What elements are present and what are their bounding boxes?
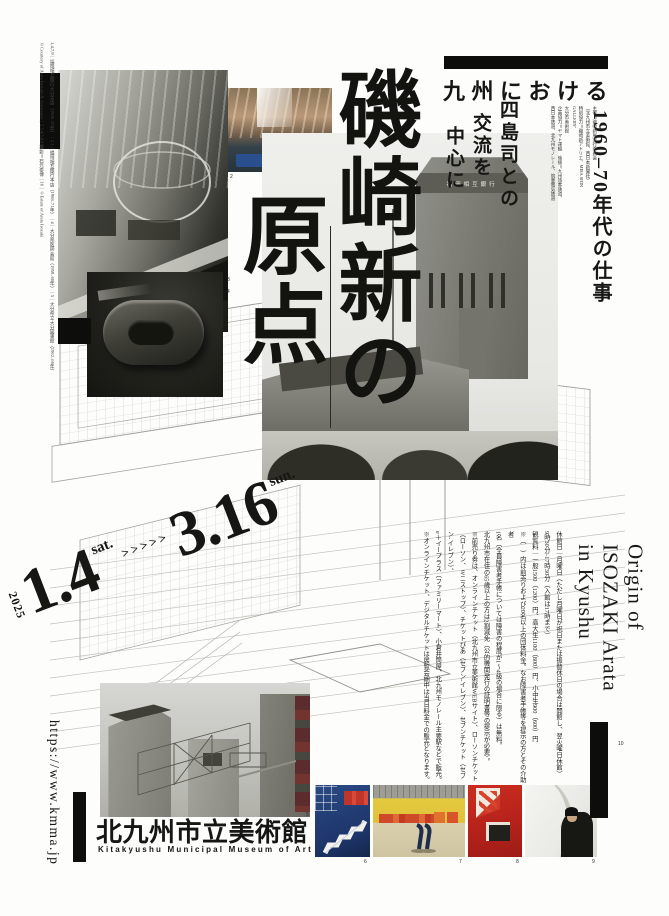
info-line: ※オンラインチケット、デジタルチケットは展覧会期中は当日料金での販売となります。 xyxy=(419,531,431,783)
info-line: e＋イープラス（ファミリーマート）、小倉井筒屋、北九州モノレール主要駅などで販売… xyxy=(431,531,443,783)
info-line: ※（ ）内は前売りおよび20名以上の団体料金。なお障害者手帳等を提示の方とその介… xyxy=(504,531,528,783)
info-line: ※前売り券は、オンラインチケット（北九州市立美術館WEBサイト）、ローソンチケッ… xyxy=(467,531,479,783)
main-title-column-left: 原点 xyxy=(234,191,320,369)
credit-line: 企画協力＝ヤマト運輸 後援＝九州旅客鉄道、 xyxy=(556,106,563,208)
credit-line: 西日本鉄道、北九州モノレール、筑豊電気鉄道 xyxy=(549,106,556,208)
date-arrows: >>>>> xyxy=(119,529,171,562)
photo-label: 3 xyxy=(227,277,230,283)
venue-name-english: Kitakyushu Municipal Museum of Art xyxy=(98,845,313,854)
focus-line-1: 四島司との xyxy=(494,100,521,210)
info-line: 観覧料｜一般1500（1200）円、高大生1100（800）円、小中生900（6… xyxy=(528,531,540,783)
headline-region: 九州における xyxy=(443,74,614,106)
caption-column-b: ©Courtesy of Arata Isozaki & Associates｜… xyxy=(36,42,47,444)
credit-line: 特別協力＝磯崎新アトリエ、MISA SHIN GALLERY、 xyxy=(570,106,584,208)
photo-credit-captions: 1,4,7,9｜福岡相互銀行大分支店（1966–67年）｜2,3｜福岡相互銀行本… xyxy=(36,42,57,444)
photo-label: 5 xyxy=(306,812,309,818)
figure-hair xyxy=(565,807,578,816)
venue-name-japanese: 北九州市立美術館 xyxy=(96,812,308,849)
museum-url: https://www.kmma.jp xyxy=(46,720,62,865)
caption-column-a: 1,4,7,9｜福岡相互銀行大分支店（1966–67年）｜2,3｜福岡相互銀行本… xyxy=(47,42,58,444)
focus-line-3: 中心に xyxy=(440,126,467,192)
red-stripes xyxy=(479,791,497,813)
photo-label: 9 xyxy=(592,859,595,865)
right-black-bar xyxy=(590,722,608,818)
info-line: （ローソン、ミニストップ）、チケットぴあ（セブン-イレブン）、セブンチケット（セ… xyxy=(443,531,467,783)
tower-window-slits xyxy=(429,273,514,309)
dark-window xyxy=(486,822,510,841)
photo-label: 8 xyxy=(516,859,519,865)
english-title-line2: ISOZAKI Arata xyxy=(598,544,623,692)
english-title-line1: Origin of xyxy=(623,544,648,692)
english-title-line3: in Kyushu xyxy=(573,544,598,692)
model-highlight xyxy=(97,283,152,300)
info-line: 北九州市在住の65歳以上の方は2割減免（公的機関発行の証明書等の提示が必要）。 xyxy=(479,531,491,783)
credit-line: 主催＝磯崎新展実行委員会 xyxy=(591,106,598,208)
credit-line: 大分市美術館 xyxy=(563,106,570,208)
figure-body xyxy=(561,812,593,857)
photo-architecture-model xyxy=(87,272,223,397)
model-inner-court xyxy=(128,320,174,345)
organizer-credits: 主催＝磯崎新展実行委員会 （北九州市立美術館、西日本新聞社） 特別協力＝磯崎新ア… xyxy=(549,106,598,208)
photo-red-stair-detail xyxy=(468,785,522,857)
focus-line-2: 交流を xyxy=(467,113,494,179)
photo-label: 6 xyxy=(364,859,367,865)
photo-label: 7 xyxy=(459,859,462,865)
ceiling-ribs xyxy=(228,88,332,138)
photo-label: 2 xyxy=(230,174,233,180)
photo-blue-room-staircase xyxy=(315,785,370,857)
venue-black-bar xyxy=(73,792,86,862)
photo-label: 10 xyxy=(618,741,624,747)
photo-label: 4 xyxy=(227,289,230,295)
visitor-info: 休館日｜月曜日（ただし月曜日が祝日または振替休日の場合は開館し、翌火曜日休館） … xyxy=(430,531,564,783)
photo-isozaki-portrait xyxy=(525,785,597,857)
photo-museum-construction xyxy=(100,683,310,817)
photo-yellow-red-interior xyxy=(373,785,465,857)
credit-line: （北九州市立美術館、西日本新聞社） xyxy=(584,106,591,208)
main-title-column-right: 磯崎新の xyxy=(330,66,414,414)
info-line: 休館日｜月曜日（ただし月曜日が祝日または振替休日の場合は開館し、翌火曜日休館） xyxy=(552,531,564,783)
english-title: Origin of ISOZAKI Arata in Kyushu xyxy=(573,544,647,692)
mid-left-black-block xyxy=(58,318,91,344)
info-line: 9時30分–17時30分（入館は17時まで） xyxy=(540,531,552,783)
exhibition-poster: 福岡相互銀行 九州における 1960–70年代の仕事 四島司との 交流を 中心に… xyxy=(0,0,669,916)
info-line: 1名（全員障害者手帳については障害の程度が1～4級の場合に限る）は無料。 xyxy=(492,531,504,783)
headline-black-bar xyxy=(444,56,608,69)
